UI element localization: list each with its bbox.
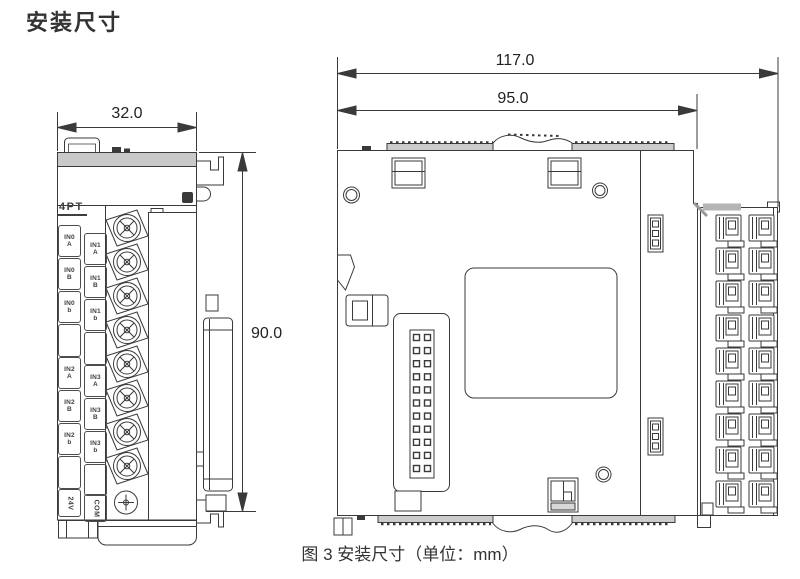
terminal-label: IN3 b — [84, 431, 107, 463]
terminal-label — [58, 324, 81, 357]
terminal-label-text: IN3 b — [90, 440, 101, 454]
dim-label-side-body: 95.0 — [473, 90, 553, 108]
terminal-label-text: IN1 A — [90, 242, 101, 256]
figure-installation-dimensions: 安装尺寸 32.0 90.0 117.0 95.0 4PT IN0 A IN0 … — [0, 0, 800, 579]
front-top-button — [65, 138, 131, 152]
terminal-label-text: IN1 B — [90, 275, 101, 289]
terminal-label-text: IN3 B — [90, 407, 101, 421]
front-terminal-cover — [149, 209, 197, 521]
dimension-drawing — [0, 0, 800, 579]
terminal-label-text: IN2 b — [64, 432, 75, 446]
terminal-label: IN1 b — [84, 299, 107, 331]
dim-label-front-height: 90.0 — [251, 325, 282, 343]
terminal-label-text: COM — [92, 499, 99, 517]
terminal-label: IN2 B — [58, 390, 81, 422]
terminal-label-text: IN3 A — [90, 374, 101, 388]
side-bottom-serration — [334, 516, 711, 536]
terminal-label — [58, 456, 81, 489]
side-bottom-connector — [548, 478, 578, 512]
terminal-label: IN0 B — [58, 258, 81, 290]
dim-label-side-total: 117.0 — [475, 52, 555, 70]
front-screw-column — [106, 210, 148, 514]
side-pin-connector — [394, 314, 450, 512]
terminal-label-text: IN2 A — [64, 366, 75, 380]
dim-label-front-width: 32.0 — [87, 105, 167, 123]
terminal-label: IN2 A — [58, 357, 81, 389]
side-label-area — [465, 268, 617, 398]
terminal-label-text: IN0 B — [64, 267, 75, 281]
page-title: 安装尺寸 — [26, 9, 122, 37]
front-side-connector — [204, 295, 233, 511]
terminal-label: COM — [84, 494, 107, 522]
terminal-label-text: IN2 B — [64, 399, 75, 413]
side-terminal-block — [694, 202, 780, 516]
terminal-label: IN3 B — [84, 398, 107, 430]
terminal-label — [84, 332, 107, 365]
figure-caption: 图 3 安装尺寸（单位：mm） — [130, 544, 690, 566]
side-top-serration — [362, 135, 674, 151]
terminal-label-text: IN1 b — [90, 308, 101, 322]
terminal-label: IN1 A — [84, 233, 107, 265]
terminal-label: IN0 b — [58, 291, 81, 323]
terminal-label: IN2 b — [58, 423, 81, 455]
front-led-indicator — [182, 192, 193, 203]
side-view — [334, 135, 780, 536]
front-bottom-foot — [59, 521, 197, 546]
terminal-label: IN0 A — [58, 225, 81, 257]
terminal-label: IN1 B — [84, 266, 107, 298]
terminal-label: IN3 A — [84, 365, 107, 397]
module-model-label: 4PT — [58, 201, 87, 216]
terminal-label-text: IN0 b — [64, 300, 75, 314]
terminal-label-text: IN0 A — [64, 234, 75, 248]
terminal-label-text: 24V — [66, 496, 73, 510]
terminal-label: 24V — [58, 489, 81, 517]
terminal-label — [84, 464, 107, 496]
